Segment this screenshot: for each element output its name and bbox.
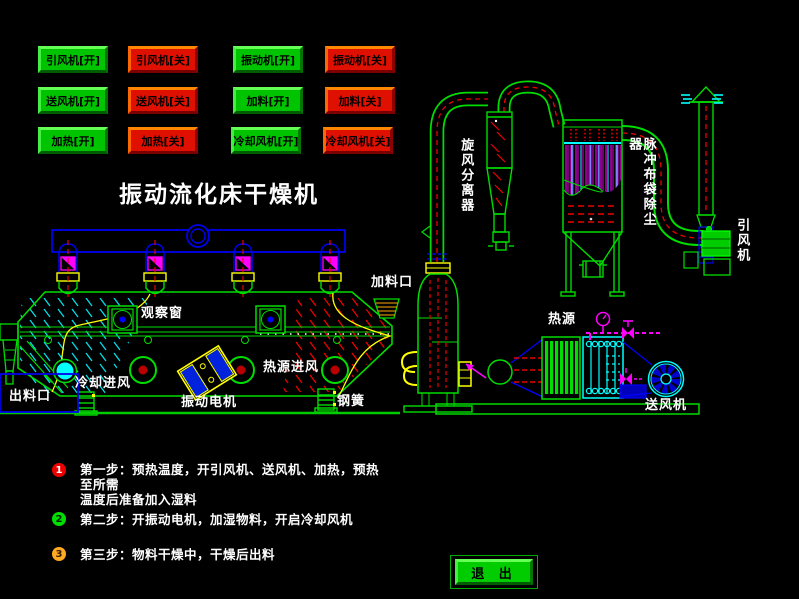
feed-off-button[interactable]: 加料[关]	[325, 87, 395, 114]
heat-exchanger	[542, 337, 580, 399]
supply-fan	[649, 362, 684, 397]
blow-duct	[488, 339, 543, 397]
fan-supply-off-button[interactable]: 送风机[关]	[128, 87, 198, 114]
cooling-fan-off-button[interactable]: 冷却风机[关]	[323, 127, 393, 154]
vibration-motor-label: 振动电机	[181, 396, 237, 410]
observation-window-label: 观察窗	[141, 307, 183, 321]
cooling-inlet-label: 冷却进风	[75, 377, 131, 391]
step3-badge: 3	[52, 547, 66, 561]
heat-off-button[interactable]: 加热[关]	[128, 127, 198, 154]
observation-windows	[108, 306, 285, 333]
vibrator-on-button[interactable]: 振动机[开]	[233, 46, 303, 73]
feed-port-label: 加料口	[371, 276, 413, 290]
feeder-vessel	[402, 254, 486, 412]
heat-inlet-label: 热源进风	[263, 361, 319, 375]
step3-text: 第三步：物料干燥中，干燥后出料	[80, 547, 400, 562]
chimney	[681, 87, 723, 227]
supply-fan-label: 送风机	[645, 399, 687, 413]
exit-button[interactable]: 退 出	[455, 559, 533, 585]
induced-fan-label: 引风机	[734, 218, 748, 266]
heat-source-label: 热源	[548, 313, 576, 327]
vibration-motor	[178, 346, 237, 400]
cooling-fan-on-button[interactable]: 冷却风机[开]	[231, 127, 301, 154]
feed-chute	[374, 299, 399, 318]
discharge-port-label: 出料口	[9, 390, 51, 404]
fan-induced-off-button[interactable]: 引风机[关]	[128, 46, 198, 73]
steel-spring-label: 钢簧	[337, 395, 365, 409]
heat-on-button[interactable]: 加热[开]	[38, 127, 108, 154]
exhaust-manifold	[52, 225, 345, 252]
hmi-screen: 引风机[开] 引风机[关] 振动机[开] 振动机[关] 送风机[开] 送风机[关…	[0, 0, 799, 599]
exhaust-stacks	[57, 240, 341, 297]
bag-filter-label: 脉冲布袋除尘器	[626, 137, 655, 241]
page-title: 振动流化床干燥机	[119, 175, 319, 209]
fan-supply-on-button[interactable]: 送风机[开]	[38, 87, 108, 114]
step1-badge: 1	[52, 463, 66, 477]
fan-induced-on-button[interactable]: 引风机[开]	[38, 46, 108, 73]
process-diagram	[0, 0, 799, 599]
steam-section	[583, 337, 623, 398]
step2-badge: 2	[52, 512, 66, 526]
vibrator-off-button[interactable]: 振动机[关]	[325, 46, 395, 73]
cyclone-label: 旋风分离器	[458, 138, 472, 218]
steam-valve	[622, 321, 634, 339]
bag-filter	[561, 120, 624, 296]
step1-text: 第一步：预热温度，开引风机、送风机、加热，预热至所需 温度后准备加入湿料	[80, 462, 390, 507]
feed-on-button[interactable]: 加料[开]	[233, 87, 303, 114]
cyclone-separator	[487, 112, 514, 250]
step2-text: 第二步：开振动电机，加湿物料，开启冷却风机	[80, 512, 400, 527]
